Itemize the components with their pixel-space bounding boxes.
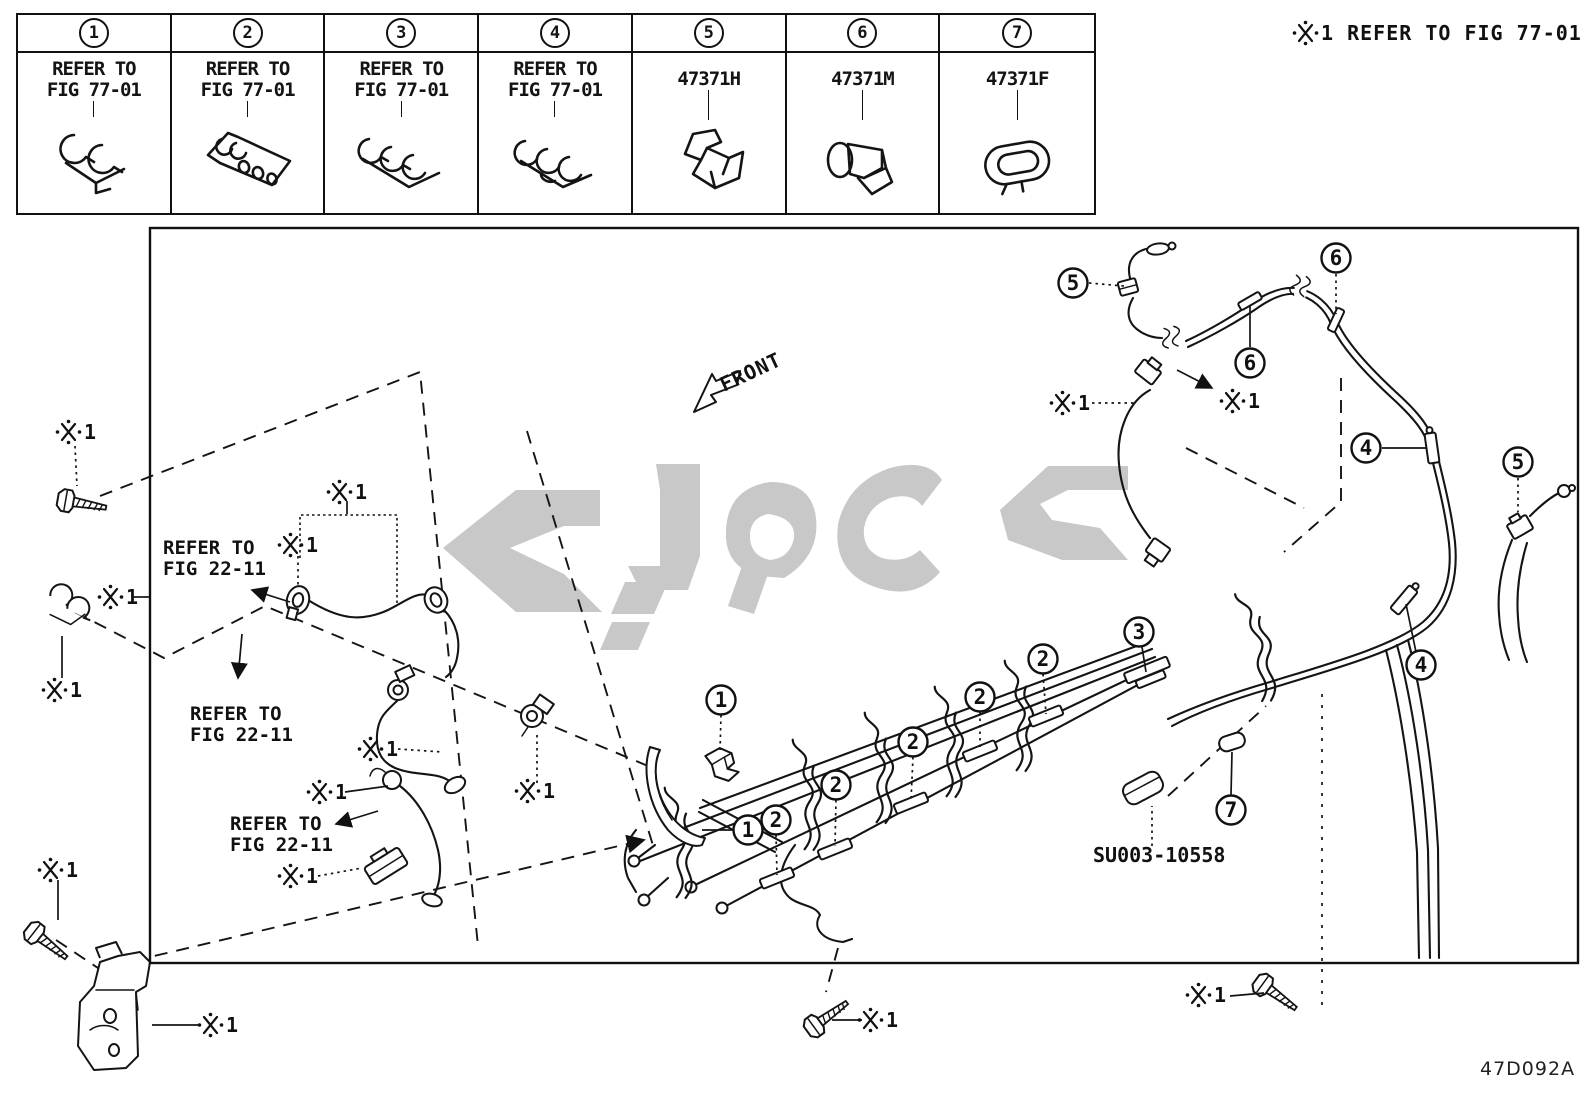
legend-item-label: 47371F [986,59,1049,90]
legend-item-label: 47371H [677,59,740,90]
callout-5: 5 [1059,269,1088,298]
diagram-frame [150,228,1578,963]
callout-2: 2 [762,806,791,835]
legend-cell-3: 3 REFER TOFIG 77-01 [325,15,479,213]
legend-cell-1: 1 REFER TOFIG 77-01 [18,15,172,213]
refer-note: REFER TOFIG 22-11 [163,537,266,580]
ref-mark-1: 1 [858,1008,898,1033]
svg-text:6: 6 [1330,246,1343,270]
legend-item-label: REFER TOFIG 77-01 [354,59,448,101]
clip-2way-icon [42,119,146,199]
top-right-note: 1 REFER TO FIG 77-01 [1293,21,1582,46]
bolt-icon [801,994,854,1041]
grommet-icon [965,122,1069,202]
push-clip-icon [810,122,914,202]
svg-text:5: 5 [1512,450,1525,474]
svg-text:1: 1 [1214,983,1226,1007]
clip-4-icon [1390,580,1422,615]
pipe-clamp-icon [893,792,928,814]
front-direction-arrow: FRONT [694,347,785,412]
watermark-logo [443,464,1128,650]
svg-text:1: 1 [1248,389,1260,413]
svg-text:1: 1 [126,585,138,609]
callout-4: 4 [1352,434,1381,463]
grommet-loose-icon [1120,769,1166,807]
legend-cell-4: 4 REFER TOFIG 77-01 [479,15,633,213]
drawing-code: 47D092A [1480,1058,1575,1080]
part-code-label: SU003-10558 [1093,843,1225,867]
svg-text:1: 1 [1078,391,1090,415]
legend-item-label: 47371M [831,59,894,90]
legend-table: 1 REFER TOFIG 77-01 2 REFER TOFIG 77-01 … [16,13,1096,215]
svg-text:1: 1 [335,780,347,804]
mounting-bracket [78,942,150,1070]
legend-item-label: REFER TOFIG 77-01 [508,59,602,101]
svg-text:1: 1 [66,858,78,882]
svg-text:1: 1 [386,737,398,761]
callout-2: 2 [1029,645,1058,674]
callout-1: 1 [707,686,736,715]
ref-mark-1: 1 [1220,389,1260,414]
svg-text:1: 1 [306,533,318,557]
legend-cell-6: 6 47371M [787,15,941,213]
ref-mark-1: 1 [198,1013,238,1038]
svg-text:2: 2 [770,808,783,832]
reference-dotted-box [300,515,397,606]
pipe-clamp-icon [962,740,997,762]
clips-and-fasteners [21,292,1534,1070]
refer-note: REFER TOFIG 22-11 [230,813,333,856]
legend-cell-7: 7 47371F [940,15,1094,213]
ref-mark-1: 1 [1186,983,1226,1008]
svg-text:4: 4 [1415,653,1428,677]
clip-3way-b-icon [503,119,607,199]
ref-mark-1: 1 [278,864,318,889]
ref-mark-1: 1 [56,420,96,445]
ref-mark-1: 1 [307,780,347,805]
ref-mark-1: 1 [38,858,78,883]
svg-text:1: 1 [355,480,367,504]
legend-item-number: 2 [172,15,324,53]
svg-text:1 REFER TO FIG 77-01: 1 REFER TO FIG 77-01 [1321,21,1582,45]
svg-text:3: 3 [1133,620,1146,644]
svg-text:2: 2 [1037,647,1050,671]
front-label: FRONT [716,347,785,396]
clip-loose-icon [361,842,409,885]
callout-2: 2 [966,683,995,712]
clip-3way-icon [349,119,453,199]
ref-mark-1: 1 [1050,391,1090,416]
leader-lines [58,274,1518,1025]
callout-7: 7 [1217,796,1246,825]
clip-4-icon [1424,426,1440,463]
legend-cell-2: 2 REFER TOFIG 77-01 [172,15,326,213]
svg-text:1: 1 [886,1008,898,1032]
legend-item-number: 3 [325,15,477,53]
callout-6: 6 [1236,349,1265,378]
legend-item-number: 7 [940,15,1094,53]
callout-3: 3 [1125,618,1154,647]
legend-item-label: REFER TOFIG 77-01 [47,59,141,101]
svg-text:1: 1 [306,864,318,888]
callout-4: 4 [1407,651,1436,680]
ref-mark-1: 1 [515,779,555,804]
refer-note: REFER TOFIG 22-11 [190,703,293,746]
ref-mark-1: 1 [278,533,318,558]
callout-5: 5 [1504,448,1533,477]
svg-text:1: 1 [715,688,728,712]
callout-1: 1 [734,816,763,845]
callout-6: 6 [1322,244,1351,273]
svg-text:5: 5 [1067,271,1080,295]
pipe-clamp-icon [759,867,794,889]
legend-item-number: 5 [633,15,785,53]
svg-text:7: 7 [1225,798,1238,822]
svg-text:1: 1 [84,420,96,444]
legend-item-label: REFER TOFIG 77-01 [201,59,295,101]
svg-text:2: 2 [830,773,843,797]
bracket-multi-icon [196,119,300,199]
three-way-clamp-icon [1124,656,1174,691]
legend-item-number: 6 [787,15,939,53]
legend-cell-5: 5 47371H [633,15,787,213]
svg-text:6: 6 [1244,351,1257,375]
svg-text:1: 1 [226,1013,238,1037]
grommet-installed-icon [1217,731,1246,753]
clamp-h-icon [657,122,761,202]
svg-text:4: 4 [1360,436,1373,460]
legend-item-number: 4 [479,15,631,53]
fuel-pipes [308,242,1575,958]
callouts-layer: 566454322222117 [707,244,1533,845]
ref-mark-1: 1 [98,585,138,610]
callout-2: 2 [822,771,851,800]
clamp-loose-icon [44,579,92,628]
bolt-icon [56,488,108,518]
svg-text:1: 1 [70,678,82,702]
ref-mark-1: 1 [42,678,82,703]
svg-text:2: 2 [974,685,987,709]
callout-2: 2 [899,728,928,757]
svg-text:1: 1 [543,779,555,803]
ref-mark-1: 1 [327,480,367,505]
svg-text:2: 2 [907,730,920,754]
svg-text:1: 1 [742,818,755,842]
clip-5-icon [1504,510,1534,539]
bolt-icon [21,919,73,967]
legend-item-number: 1 [18,15,170,53]
